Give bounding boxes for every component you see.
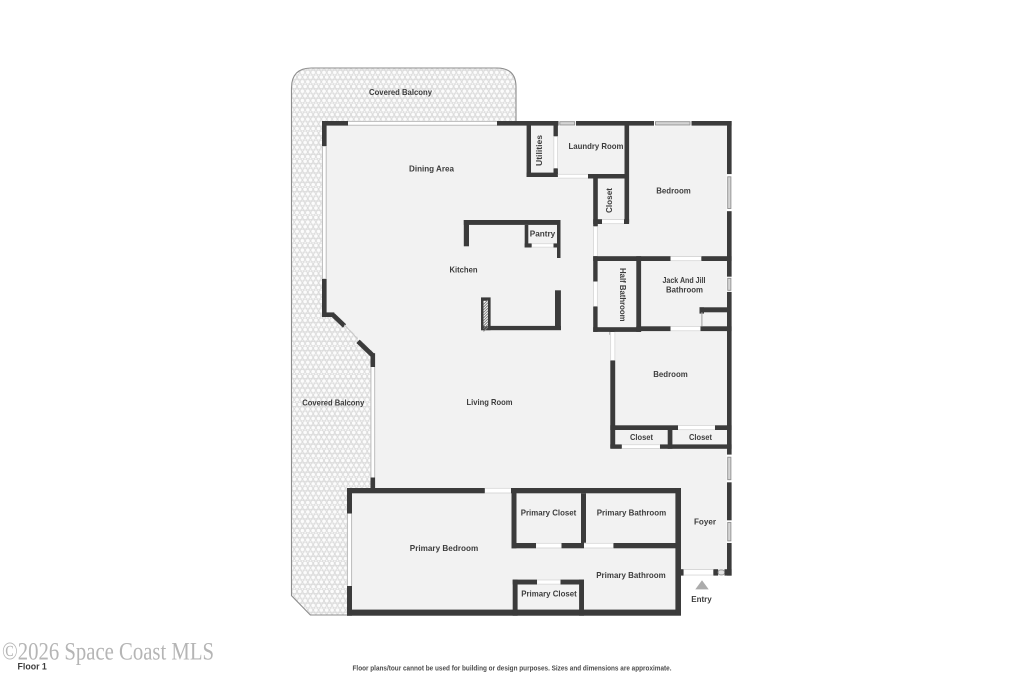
svg-text:Primary Closet: Primary Closet	[521, 508, 577, 518]
svg-text:Covered Balcony: Covered Balcony	[302, 397, 364, 407]
svg-text:Bathroom: Bathroom	[666, 285, 703, 295]
svg-text:Entry: Entry	[691, 594, 712, 604]
svg-text:Bedroom: Bedroom	[653, 369, 688, 379]
svg-text:Half Bathroom: Half Bathroom	[618, 268, 628, 322]
svg-text:Floor 1: Floor 1	[18, 662, 47, 672]
svg-text:Primary Bedroom: Primary Bedroom	[410, 543, 479, 553]
svg-text:Closet: Closet	[604, 188, 614, 213]
svg-text:Utilities: Utilities	[534, 135, 544, 166]
svg-text:Primary Closet: Primary Closet	[521, 588, 577, 598]
svg-text:Laundry Room: Laundry Room	[569, 141, 624, 151]
svg-text:Covered Balcony: Covered Balcony	[369, 87, 432, 97]
svg-text:Bedroom: Bedroom	[656, 186, 691, 196]
svg-text:Jack And Jill: Jack And Jill	[663, 275, 706, 285]
svg-text:Foyer: Foyer	[694, 516, 717, 526]
svg-text:Closet: Closet	[689, 432, 712, 442]
svg-text:Primary Bathroom: Primary Bathroom	[596, 570, 666, 580]
svg-text:Floor plans/tour cannot be use: Floor plans/tour cannot be used for buil…	[353, 663, 672, 672]
svg-text:Primary Bathroom: Primary Bathroom	[597, 508, 667, 518]
svg-text:Kitchen: Kitchen	[450, 264, 478, 274]
svg-text:Closet: Closet	[630, 432, 653, 442]
svg-text:Pantry: Pantry	[530, 228, 556, 238]
svg-text:Living Room: Living Room	[467, 397, 513, 407]
svg-text:Dining Area: Dining Area	[409, 164, 454, 174]
